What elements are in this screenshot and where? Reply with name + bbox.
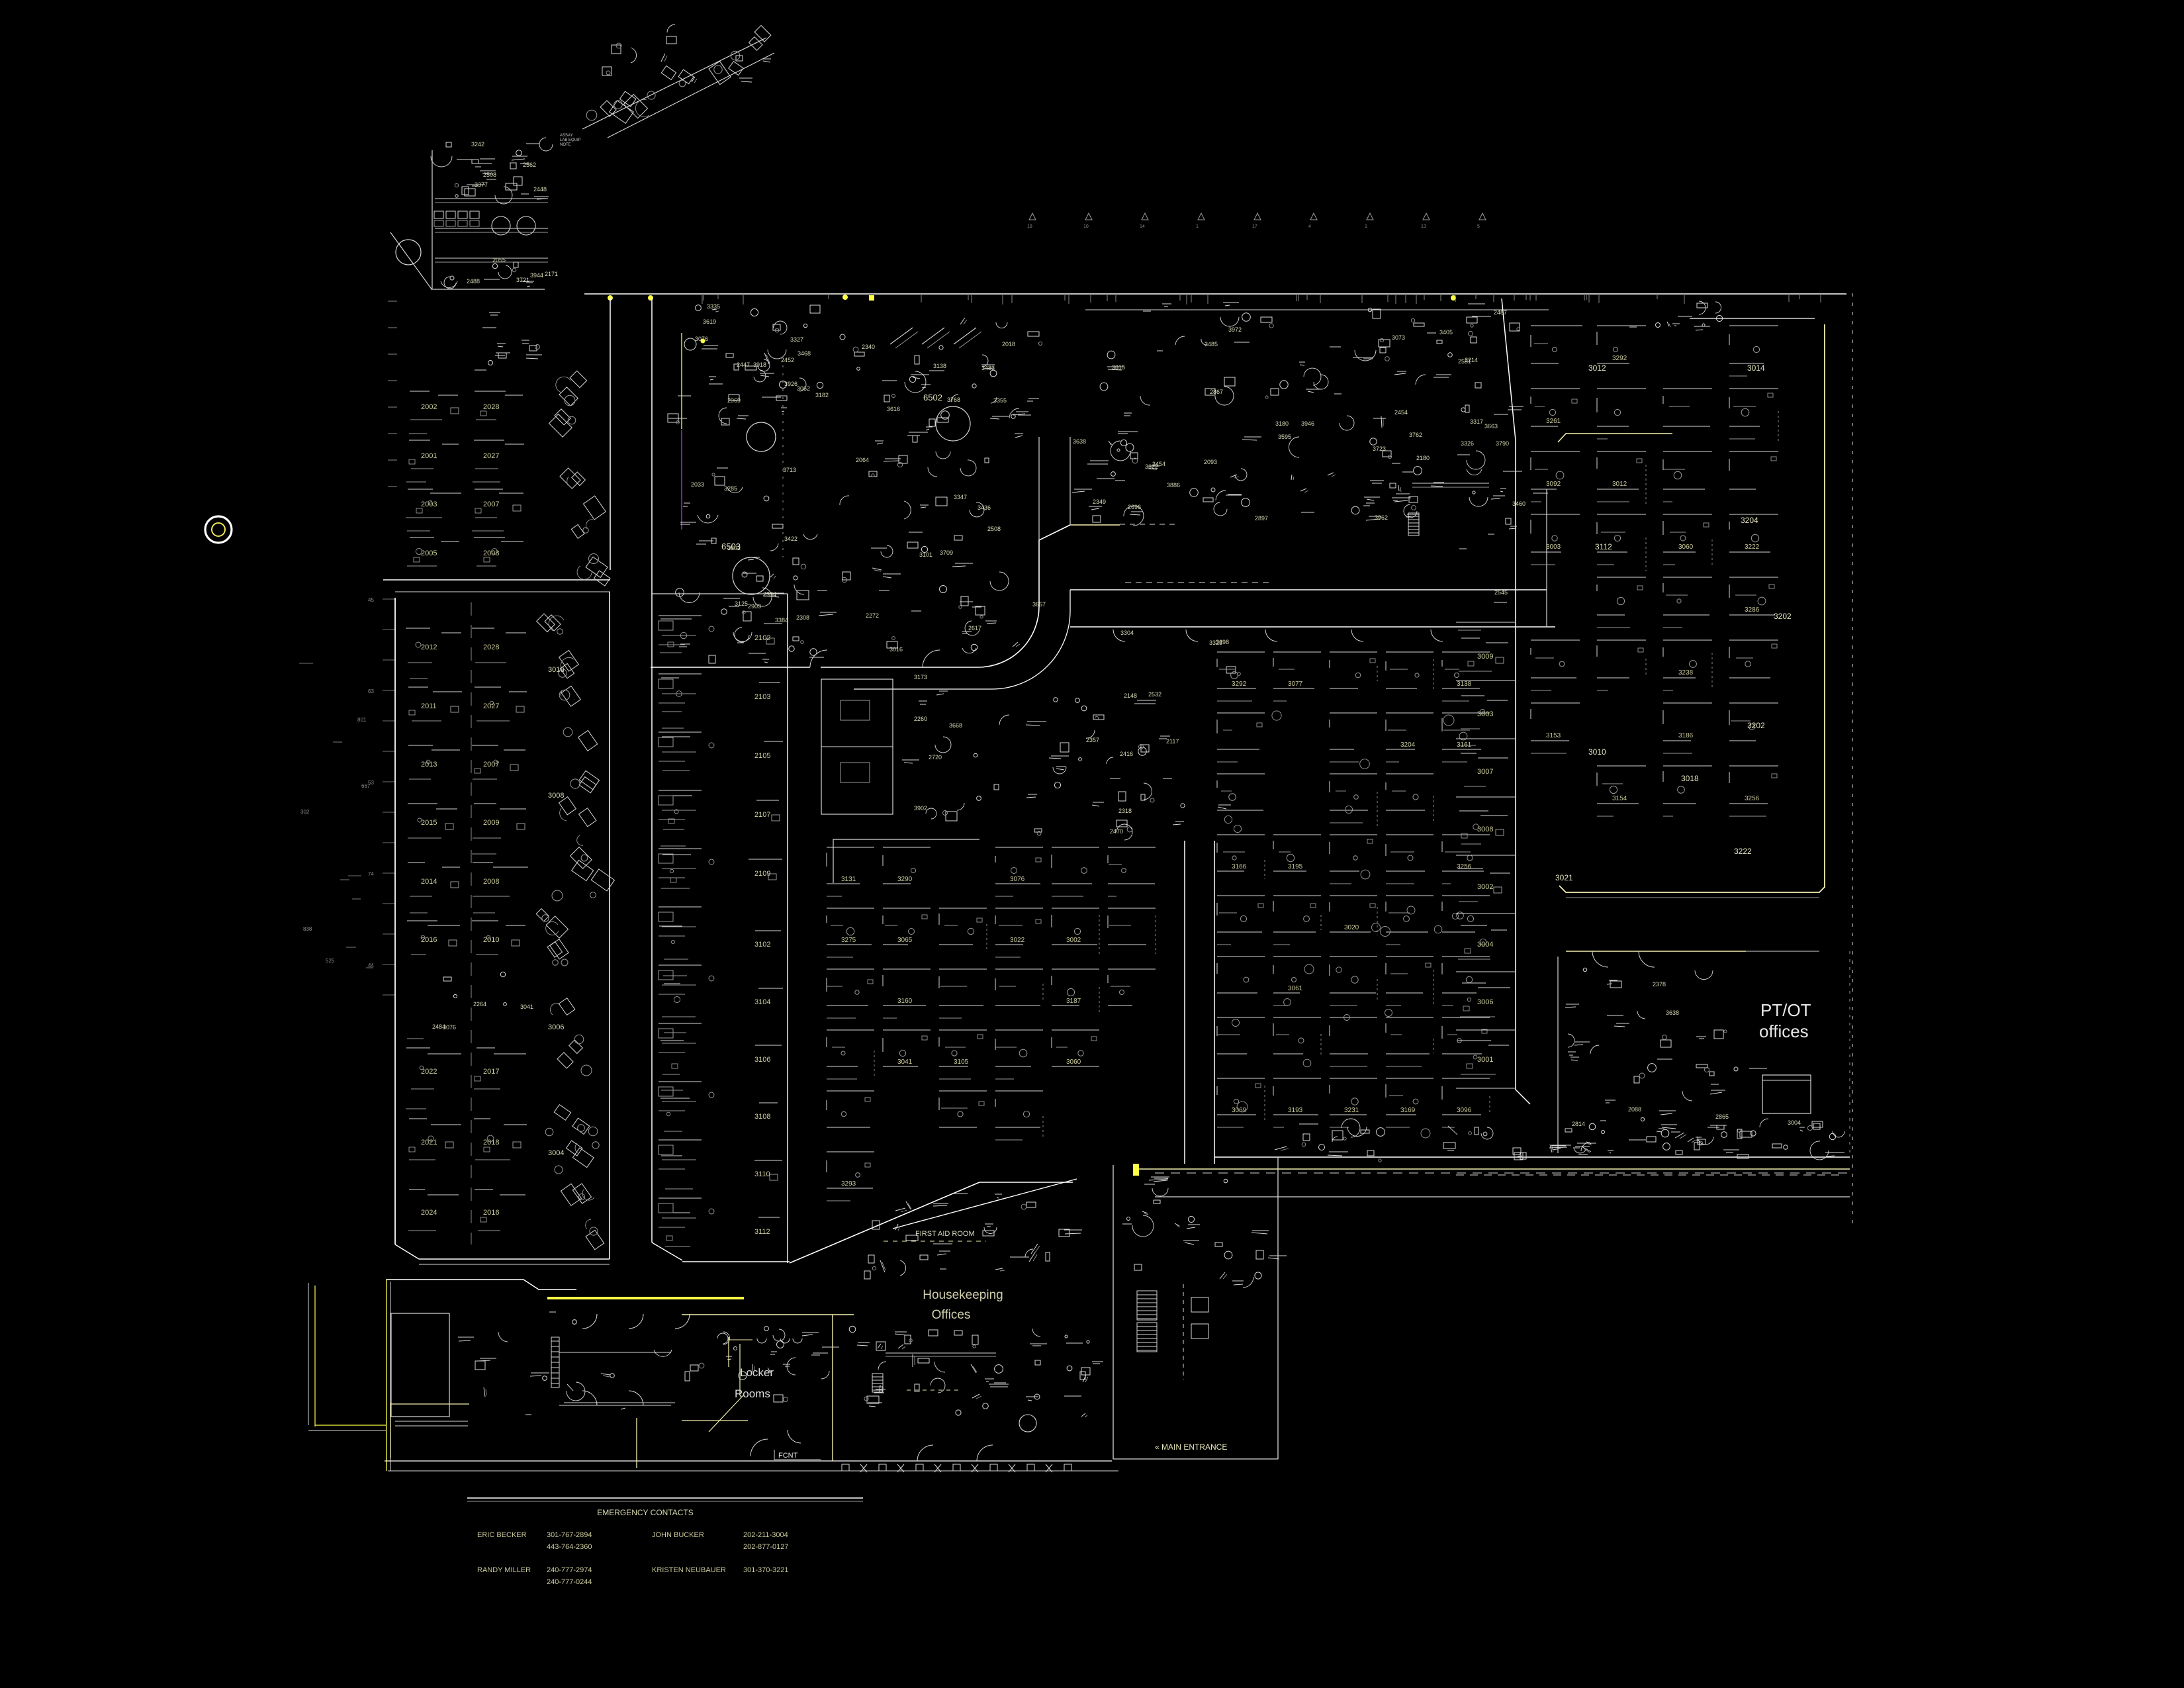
svg-text:3616: 3616 xyxy=(887,406,900,412)
svg-text:240-777-2974: 240-777-2974 xyxy=(547,1566,592,1574)
svg-text:3222: 3222 xyxy=(1745,543,1760,551)
svg-text:2814: 2814 xyxy=(1572,1121,1585,1127)
svg-text:3076: 3076 xyxy=(695,336,708,342)
svg-text:NOTE: NOTE xyxy=(560,143,571,147)
svg-text:2508: 2508 xyxy=(483,171,496,178)
svg-text:3131: 3131 xyxy=(841,876,856,883)
svg-text:2867: 2867 xyxy=(1210,389,1223,395)
svg-text:3161: 3161 xyxy=(1457,741,1472,749)
svg-text:JOHN BUCKER: JOHN BUCKER xyxy=(652,1531,704,1539)
svg-text:3377: 3377 xyxy=(475,181,488,188)
svg-text:3153: 3153 xyxy=(1546,732,1561,739)
svg-text:2562: 2562 xyxy=(523,162,536,168)
svg-text:13: 13 xyxy=(1421,224,1426,229)
svg-text:3595: 3595 xyxy=(1278,434,1291,440)
svg-text:3041: 3041 xyxy=(520,1004,533,1010)
svg-text:3003: 3003 xyxy=(1546,543,1561,551)
svg-text:3204: 3204 xyxy=(1400,741,1416,749)
svg-text:2013: 2013 xyxy=(421,761,437,769)
svg-text:3182: 3182 xyxy=(815,392,829,399)
svg-text:3108: 3108 xyxy=(754,1113,770,1121)
svg-text:3886: 3886 xyxy=(1167,482,1180,489)
svg-text:3668: 3668 xyxy=(949,722,962,729)
svg-text:3169: 3169 xyxy=(1400,1107,1416,1114)
svg-text:2017: 2017 xyxy=(483,1068,499,1076)
svg-text:3317: 3317 xyxy=(1470,418,1483,425)
svg-text:2003: 2003 xyxy=(421,500,437,508)
svg-text:301-767-2894: 301-767-2894 xyxy=(547,1531,592,1539)
svg-text:2378: 2378 xyxy=(1653,981,1666,988)
svg-text:3021: 3021 xyxy=(1555,873,1573,882)
svg-text:6502: 6502 xyxy=(923,393,942,402)
svg-text:FIRST AID ROOM: FIRST AID ROOM xyxy=(915,1230,975,1238)
svg-text:3261: 3261 xyxy=(1546,418,1561,425)
svg-text:3709: 3709 xyxy=(940,549,953,556)
svg-text:3972: 3972 xyxy=(1228,326,1242,333)
svg-text:2021: 2021 xyxy=(421,1139,437,1147)
svg-text:667: 667 xyxy=(361,783,371,789)
svg-text:2617: 2617 xyxy=(968,625,981,632)
svg-text:3327: 3327 xyxy=(790,336,803,343)
svg-text:3698: 3698 xyxy=(1216,639,1229,645)
svg-text:301-370-3221: 301-370-3221 xyxy=(743,1566,789,1574)
svg-text:offices: offices xyxy=(1759,1021,1809,1041)
svg-text:3160: 3160 xyxy=(897,998,913,1005)
svg-text:2488: 2488 xyxy=(467,278,480,285)
svg-text:1: 1 xyxy=(1365,224,1367,229)
svg-text:3138: 3138 xyxy=(1457,680,1472,688)
svg-text:2532: 2532 xyxy=(1148,691,1161,698)
svg-text:2357: 2357 xyxy=(1086,737,1099,743)
svg-text:RANDY MILLER: RANDY MILLER xyxy=(477,1566,531,1574)
svg-text:3092: 3092 xyxy=(1546,481,1561,488)
svg-text:2349: 2349 xyxy=(1093,498,1106,505)
svg-text:3285: 3285 xyxy=(724,485,737,492)
svg-text:3020: 3020 xyxy=(1344,924,1359,931)
svg-text:2015: 2015 xyxy=(421,819,437,827)
svg-text:2103: 2103 xyxy=(754,693,770,701)
svg-text:2897: 2897 xyxy=(1255,515,1268,522)
svg-text:3405: 3405 xyxy=(1439,329,1453,336)
svg-text:2002: 2002 xyxy=(421,403,437,411)
svg-text:3256: 3256 xyxy=(1457,863,1472,870)
svg-text:525: 525 xyxy=(326,958,335,964)
svg-text:2016: 2016 xyxy=(421,936,437,944)
svg-text:3076: 3076 xyxy=(443,1024,456,1031)
svg-text:3180: 3180 xyxy=(1275,420,1289,427)
svg-text:2171: 2171 xyxy=(545,271,558,277)
svg-text:3292: 3292 xyxy=(1612,355,1627,362)
svg-text:3256: 3256 xyxy=(1745,795,1760,802)
svg-text:3002: 3002 xyxy=(1066,937,1081,944)
svg-text:302: 302 xyxy=(300,809,310,815)
svg-text:3112: 3112 xyxy=(754,1228,770,1236)
svg-text:3638: 3638 xyxy=(1666,1009,1679,1016)
svg-text:3041: 3041 xyxy=(897,1058,913,1066)
svg-text:3010: 3010 xyxy=(548,666,564,674)
svg-text:2340: 2340 xyxy=(862,344,875,350)
svg-text:3422: 3422 xyxy=(784,536,797,542)
svg-text:2024: 2024 xyxy=(421,1209,437,1217)
svg-text:3069: 3069 xyxy=(1232,1107,1247,1114)
svg-text:ERIC BECKER: ERIC BECKER xyxy=(477,1531,527,1539)
svg-text:443-764-2360: 443-764-2360 xyxy=(547,1543,592,1551)
svg-text:5: 5 xyxy=(1477,224,1480,229)
svg-text:14: 14 xyxy=(1140,224,1145,229)
svg-text:2027: 2027 xyxy=(483,702,499,710)
svg-text:3762: 3762 xyxy=(1409,432,1422,438)
svg-text:3004: 3004 xyxy=(548,1149,564,1157)
svg-text:2508: 2508 xyxy=(987,526,1001,532)
svg-text:3002: 3002 xyxy=(1477,883,1493,891)
svg-text:2014: 2014 xyxy=(421,878,437,886)
svg-text:3073: 3073 xyxy=(1392,334,1405,341)
svg-text:801: 801 xyxy=(357,717,367,723)
svg-text:838: 838 xyxy=(303,926,312,932)
svg-text:3076: 3076 xyxy=(1010,876,1025,883)
svg-text:3202: 3202 xyxy=(1747,721,1765,730)
svg-text:2264: 2264 xyxy=(473,1001,486,1008)
svg-text:FCNT: FCNT xyxy=(778,1452,798,1460)
svg-text:3204: 3204 xyxy=(1741,516,1758,525)
svg-text:Housekeeping: Housekeeping xyxy=(923,1288,1003,1302)
svg-text:2448: 2448 xyxy=(533,186,547,193)
svg-text:3022: 3022 xyxy=(1010,937,1025,944)
svg-text:2903: 2903 xyxy=(748,603,761,610)
svg-text:3104: 3104 xyxy=(754,998,770,1006)
svg-text:2055: 2055 xyxy=(492,257,506,263)
svg-text:3713: 3713 xyxy=(783,467,796,473)
svg-text:2027: 2027 xyxy=(483,452,499,460)
svg-text:2033: 2033 xyxy=(691,481,704,488)
svg-text:3946: 3946 xyxy=(1301,420,1314,427)
svg-text:3304: 3304 xyxy=(1120,630,1134,636)
svg-text:ASSAY: ASSAY xyxy=(560,134,573,138)
svg-text:3347: 3347 xyxy=(954,494,967,500)
svg-text:3112: 3112 xyxy=(1595,542,1612,551)
svg-text:3335: 3335 xyxy=(707,303,720,310)
svg-text:Offices: Offices xyxy=(932,1308,971,1322)
svg-text:3231: 3231 xyxy=(1344,1107,1359,1114)
svg-text:3065: 3065 xyxy=(897,937,913,944)
svg-text:3663: 3663 xyxy=(1484,423,1498,430)
svg-text:3001: 3001 xyxy=(1477,1056,1493,1064)
svg-text:3096: 3096 xyxy=(1457,1107,1472,1114)
svg-text:2180: 2180 xyxy=(1416,455,1430,461)
svg-text:3186: 3186 xyxy=(1678,732,1694,739)
svg-text:3275: 3275 xyxy=(841,937,856,944)
svg-text:EMERGENCY CONTACTS: EMERGENCY CONTACTS xyxy=(597,1508,694,1517)
svg-text:3286: 3286 xyxy=(1745,606,1760,614)
svg-text:3195: 3195 xyxy=(1288,863,1303,870)
svg-text:3061: 3061 xyxy=(1288,985,1303,992)
svg-text:2005: 2005 xyxy=(421,549,437,557)
svg-text:2865: 2865 xyxy=(1715,1113,1729,1120)
svg-text:3238: 3238 xyxy=(1678,669,1694,677)
svg-text:3214: 3214 xyxy=(1465,357,1478,363)
svg-text:3016: 3016 xyxy=(889,646,903,653)
svg-text:2011: 2011 xyxy=(421,702,437,710)
svg-text:2093: 2093 xyxy=(1204,459,1217,465)
svg-text:2470: 2470 xyxy=(1110,828,1123,835)
svg-text:3454: 3454 xyxy=(1152,461,1165,467)
svg-text:3638: 3638 xyxy=(1073,438,1086,445)
svg-text:2454: 2454 xyxy=(1394,409,1408,416)
svg-text:10: 10 xyxy=(1083,224,1089,229)
svg-text:3154: 3154 xyxy=(1612,795,1627,802)
svg-text:2452: 2452 xyxy=(781,357,794,363)
svg-text:2354: 2354 xyxy=(763,591,776,598)
svg-text:3106: 3106 xyxy=(754,1056,770,1064)
svg-text:2007: 2007 xyxy=(483,761,499,769)
svg-text:3768: 3768 xyxy=(947,397,960,403)
svg-text:3062: 3062 xyxy=(797,385,810,392)
svg-text:3962: 3962 xyxy=(1375,514,1388,521)
svg-text:202-211-3004: 202-211-3004 xyxy=(743,1531,788,1539)
svg-text:3006: 3006 xyxy=(1477,998,1493,1006)
svg-text:2012: 2012 xyxy=(421,643,437,651)
svg-text:3326: 3326 xyxy=(1461,440,1474,447)
svg-text:3485: 3485 xyxy=(1205,341,1218,348)
svg-text:PT/OT: PT/OT xyxy=(1760,1000,1811,1020)
svg-text:2028: 2028 xyxy=(483,643,499,651)
svg-text:3460: 3460 xyxy=(1512,500,1525,507)
svg-text:3014: 3014 xyxy=(1747,363,1765,373)
svg-text:3009: 3009 xyxy=(1477,653,1493,661)
svg-text:3944: 3944 xyxy=(530,272,543,279)
svg-text:3187: 3187 xyxy=(1066,998,1081,1005)
svg-text:2107: 2107 xyxy=(754,811,770,819)
svg-text:3202: 3202 xyxy=(1774,612,1792,621)
svg-text:2272: 2272 xyxy=(866,612,879,619)
svg-text:3902: 3902 xyxy=(914,805,927,812)
svg-text:3619: 3619 xyxy=(703,318,716,325)
svg-text:2318: 2318 xyxy=(1118,808,1132,814)
svg-text:2009: 2009 xyxy=(483,819,499,827)
svg-text:3290: 3290 xyxy=(897,876,913,883)
svg-text:2720: 2720 xyxy=(929,754,942,761)
svg-text:2018: 2018 xyxy=(483,1139,499,1147)
svg-text:1: 1 xyxy=(1196,224,1199,229)
svg-text:3468: 3468 xyxy=(797,350,811,357)
svg-text:3060: 3060 xyxy=(1678,543,1694,551)
svg-text:3657: 3657 xyxy=(1032,601,1046,608)
svg-text:74: 74 xyxy=(368,871,374,877)
svg-text:3292: 3292 xyxy=(1232,680,1247,688)
svg-text:3004: 3004 xyxy=(1788,1119,1801,1126)
svg-text:3384: 3384 xyxy=(775,617,788,624)
svg-text:3222: 3222 xyxy=(1734,847,1752,856)
svg-text:2001: 2001 xyxy=(421,452,437,460)
svg-text:3723: 3723 xyxy=(1373,445,1386,452)
svg-text:2117: 2117 xyxy=(1166,738,1179,745)
svg-text:63: 63 xyxy=(368,688,374,694)
svg-text:2148: 2148 xyxy=(1124,692,1137,699)
svg-text:LAB EQUIP: LAB EQUIP xyxy=(560,138,581,142)
svg-text:2007: 2007 xyxy=(483,500,499,508)
svg-text:2064: 2064 xyxy=(856,457,869,463)
svg-text:3166: 3166 xyxy=(1232,863,1247,870)
svg-text:4: 4 xyxy=(1308,224,1311,229)
svg-text:2487: 2487 xyxy=(1494,309,1507,316)
svg-text:3007: 3007 xyxy=(1477,768,1493,776)
svg-text:2018: 2018 xyxy=(1002,341,1015,348)
svg-text:3293: 3293 xyxy=(841,1180,856,1188)
svg-text:3110: 3110 xyxy=(754,1170,770,1178)
svg-text:2028: 2028 xyxy=(483,403,499,411)
svg-text:3008: 3008 xyxy=(1477,825,1493,833)
svg-text:« MAIN ENTRANCE: « MAIN ENTRANCE xyxy=(1155,1442,1227,1452)
svg-text:3105: 3105 xyxy=(954,1058,969,1066)
svg-text:18: 18 xyxy=(1027,224,1032,229)
svg-text:3010: 3010 xyxy=(1588,747,1606,757)
svg-text:3173: 3173 xyxy=(914,674,927,680)
svg-text:3012: 3012 xyxy=(1612,481,1627,488)
svg-text:17: 17 xyxy=(1252,224,1257,229)
svg-text:KRISTEN NEUBAUER: KRISTEN NEUBAUER xyxy=(652,1566,726,1574)
svg-text:2545: 2545 xyxy=(1494,589,1508,596)
svg-text:3102: 3102 xyxy=(754,941,770,949)
svg-text:3242: 3242 xyxy=(471,141,484,148)
svg-text:3138: 3138 xyxy=(933,363,946,369)
svg-text:3790: 3790 xyxy=(1496,440,1509,447)
svg-text:2088: 2088 xyxy=(1628,1106,1641,1113)
svg-text:3060: 3060 xyxy=(1066,1058,1081,1066)
svg-text:3012: 3012 xyxy=(1588,363,1606,373)
svg-text:3802: 3802 xyxy=(727,545,741,551)
svg-text:2105: 2105 xyxy=(754,752,770,760)
svg-text:3003: 3003 xyxy=(1477,710,1493,718)
svg-text:2010: 2010 xyxy=(483,936,499,944)
svg-text:2308: 2308 xyxy=(796,614,809,621)
svg-text:2416: 2416 xyxy=(1120,751,1133,757)
svg-text:202-877-0127: 202-877-0127 xyxy=(743,1543,789,1551)
svg-text:2008: 2008 xyxy=(483,878,499,886)
svg-text:2260: 2260 xyxy=(914,716,927,722)
svg-text:3918: 3918 xyxy=(753,361,766,368)
svg-text:3193: 3193 xyxy=(1288,1107,1303,1114)
svg-text:240-777-0244: 240-777-0244 xyxy=(547,1578,592,1586)
svg-text:3006: 3006 xyxy=(548,1023,564,1031)
svg-text:3018: 3018 xyxy=(1681,774,1699,783)
svg-text:3008: 3008 xyxy=(548,792,564,800)
svg-text:45: 45 xyxy=(368,597,374,603)
svg-text:2016: 2016 xyxy=(483,1209,499,1217)
svg-text:3077: 3077 xyxy=(1288,680,1303,688)
